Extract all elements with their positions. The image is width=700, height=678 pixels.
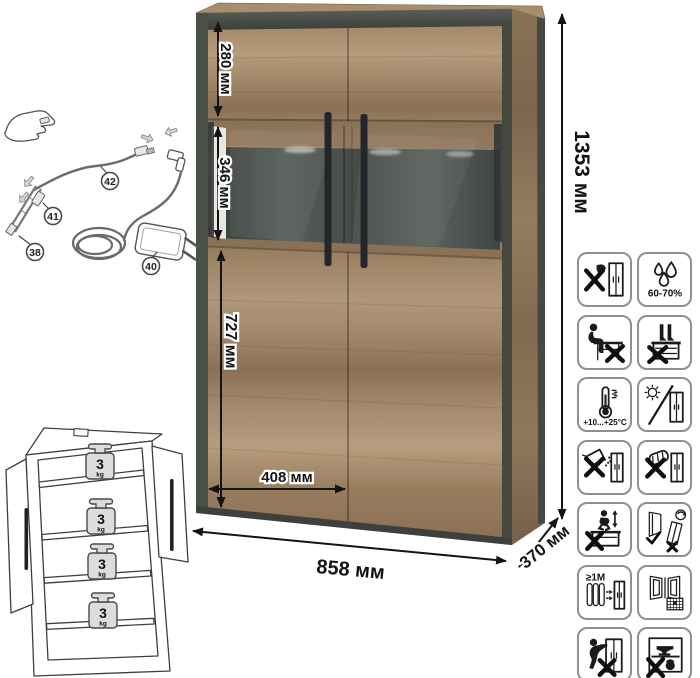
dimension-label-display-section: 346 мм — [216, 157, 233, 208]
no-abrasives-icon — [582, 444, 628, 490]
shelf-weight-1: 3 kg — [86, 444, 114, 479]
no-direct-sunlight-icon — [642, 382, 688, 428]
lineart-right-door-handle — [170, 479, 174, 551]
part-number-adapter: 40 — [145, 261, 157, 273]
no-scouring-icon — [642, 444, 688, 490]
led-strip — [6, 186, 41, 235]
shelf-weight-4: 3 kg — [89, 593, 117, 628]
part-number-strip: 38 — [29, 247, 41, 259]
cabinet-right-corner-band — [502, 22, 512, 545]
insert-arrow — [140, 132, 154, 144]
care-tile-humidity: 60-70% — [637, 252, 692, 307]
weight-value: 3 — [96, 456, 104, 472]
heater-distance-label: ≥1M — [585, 573, 604, 584]
cabinet-left-edge-band — [196, 13, 208, 513]
no-heavy-load-icon — [642, 632, 688, 678]
care-tile-no-direct-sunlight — [637, 377, 692, 432]
care-tile-no-scouring — [637, 440, 692, 495]
care-tile-heater-distance: ≥1M — [577, 565, 632, 620]
no-standing-icon — [642, 319, 688, 365]
part-number-cable: 42 — [104, 176, 116, 188]
care-tile-no-jumping — [577, 502, 632, 557]
no-dragging-icon — [582, 632, 628, 678]
insert-arrow — [164, 125, 178, 137]
shelf-weight-2: 3 kg — [87, 499, 115, 534]
care-tile-no-standing — [637, 315, 692, 370]
lineart-lock — [74, 429, 88, 437]
strip-connector — [31, 191, 45, 206]
calendar-grid — [667, 598, 683, 610]
ventilate-room-icon — [642, 569, 688, 615]
weight-unit: kg — [98, 572, 106, 579]
door-handle-left — [325, 112, 332, 266]
cabinet-photo — [196, 3, 545, 545]
lineart-left-door-handle — [25, 508, 29, 570]
no-sitting-icon — [582, 319, 628, 365]
weight-value: 3 — [98, 556, 106, 572]
dimension-label-top-section: 280 мм — [217, 43, 234, 94]
care-tile-temperature: +10...+25°C — [577, 377, 632, 432]
care-tile-no-heavy-load — [637, 627, 692, 678]
adjust-doors-icon — [642, 507, 688, 553]
part-number-connector: 41 — [47, 211, 59, 223]
dimension-label-lower-section: 727 мм — [222, 314, 239, 369]
care-tile-no-abrasives — [577, 440, 632, 495]
care-tile-no-dragging — [577, 627, 632, 678]
care-tile-adjust-doors — [637, 502, 692, 557]
connection-cable — [34, 154, 137, 190]
no-jumping-icon — [582, 507, 628, 553]
humidity-range-label: 60-70% — [647, 288, 681, 299]
insert-arrow — [21, 174, 36, 189]
care-tile-no-sharp-tools — [577, 252, 632, 307]
weight-unit: kg — [96, 472, 104, 479]
power-adapter — [134, 222, 199, 263]
dimension-label-door-width: 408 мм — [261, 469, 312, 486]
care-tile-no-sitting — [577, 315, 632, 370]
humidity-icon: 60-70% — [642, 257, 688, 303]
temperature-icon: +10...+25°C — [582, 382, 628, 428]
dimension-label-total-height: 1353 мм — [570, 130, 593, 214]
care-icon-grid: 60-70% +10...+25°C — [577, 252, 692, 678]
weight-unit: kg — [97, 527, 105, 534]
weight-value: 3 — [97, 511, 105, 527]
weight-value: 3 — [99, 605, 107, 621]
heater-distance-icon: ≥1M — [582, 569, 628, 615]
wiring-diagram: 42 41 38 40 — [5, 111, 200, 275]
anvil-glyph — [656, 646, 673, 655]
cabinet-front-face — [196, 9, 512, 545]
cable-coil — [73, 228, 125, 259]
no-sharp-tools-icon — [582, 257, 628, 303]
weight-unit: kg — [99, 621, 107, 628]
door-handle-right — [361, 114, 368, 268]
product-spec-sheet: 280 мм 346 мм 727 мм 408 мм 858 мм 370 м… — [0, 0, 700, 678]
care-tile-ventilate-room — [637, 565, 692, 620]
temperature-range-label: +10...+25°C — [583, 417, 627, 426]
dimension-label-total-width: 858 мм — [315, 556, 385, 584]
hand-illustration — [5, 111, 55, 141]
shelf-weight-3: 3 kg — [88, 544, 116, 579]
cabinet-side-edge-band — [537, 17, 545, 524]
shelf-load-diagram: 3 kg 3 kg 3 kg 3 kg — [6, 428, 188, 676]
dc-plug — [167, 149, 185, 171]
